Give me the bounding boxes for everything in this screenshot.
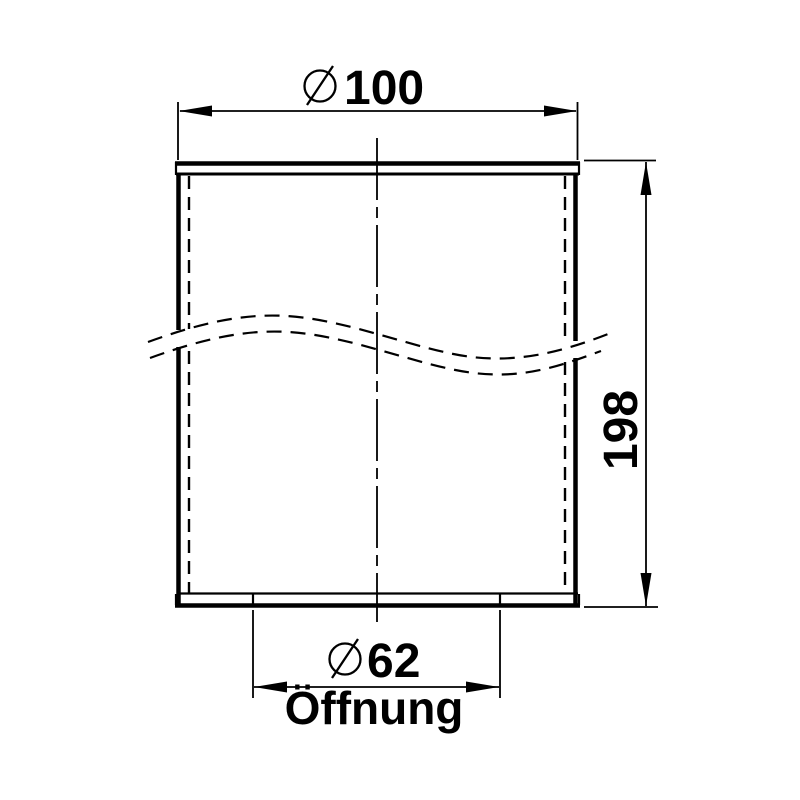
height-value: 198 — [595, 390, 648, 470]
drawing-page: 100 — [0, 0, 800, 800]
opening-diameter-value: 62 — [367, 635, 420, 688]
arrowhead-left-icon — [179, 106, 212, 117]
part-outline — [148, 138, 608, 622]
diameter-symbol-icon — [330, 639, 361, 678]
dimension-opening-diameter: 62 Öffnung — [253, 610, 500, 734]
break-lines — [148, 316, 608, 375]
arrowhead-right-icon — [544, 106, 577, 117]
diameter-symbol-icon — [305, 66, 336, 105]
dimension-height: 198 — [584, 161, 658, 608]
arrowhead-up-icon — [641, 162, 652, 195]
technical-drawing-canvas: 100 — [0, 0, 800, 800]
outer-diameter-value: 100 — [344, 62, 424, 115]
opening-caption: Öffnung — [285, 682, 464, 734]
break-line-lower — [150, 332, 601, 375]
arrowhead-down-icon — [641, 573, 652, 606]
arrowhead-left-icon — [254, 682, 287, 693]
break-line-upper — [148, 316, 608, 359]
arrowhead-right-icon — [466, 682, 499, 693]
